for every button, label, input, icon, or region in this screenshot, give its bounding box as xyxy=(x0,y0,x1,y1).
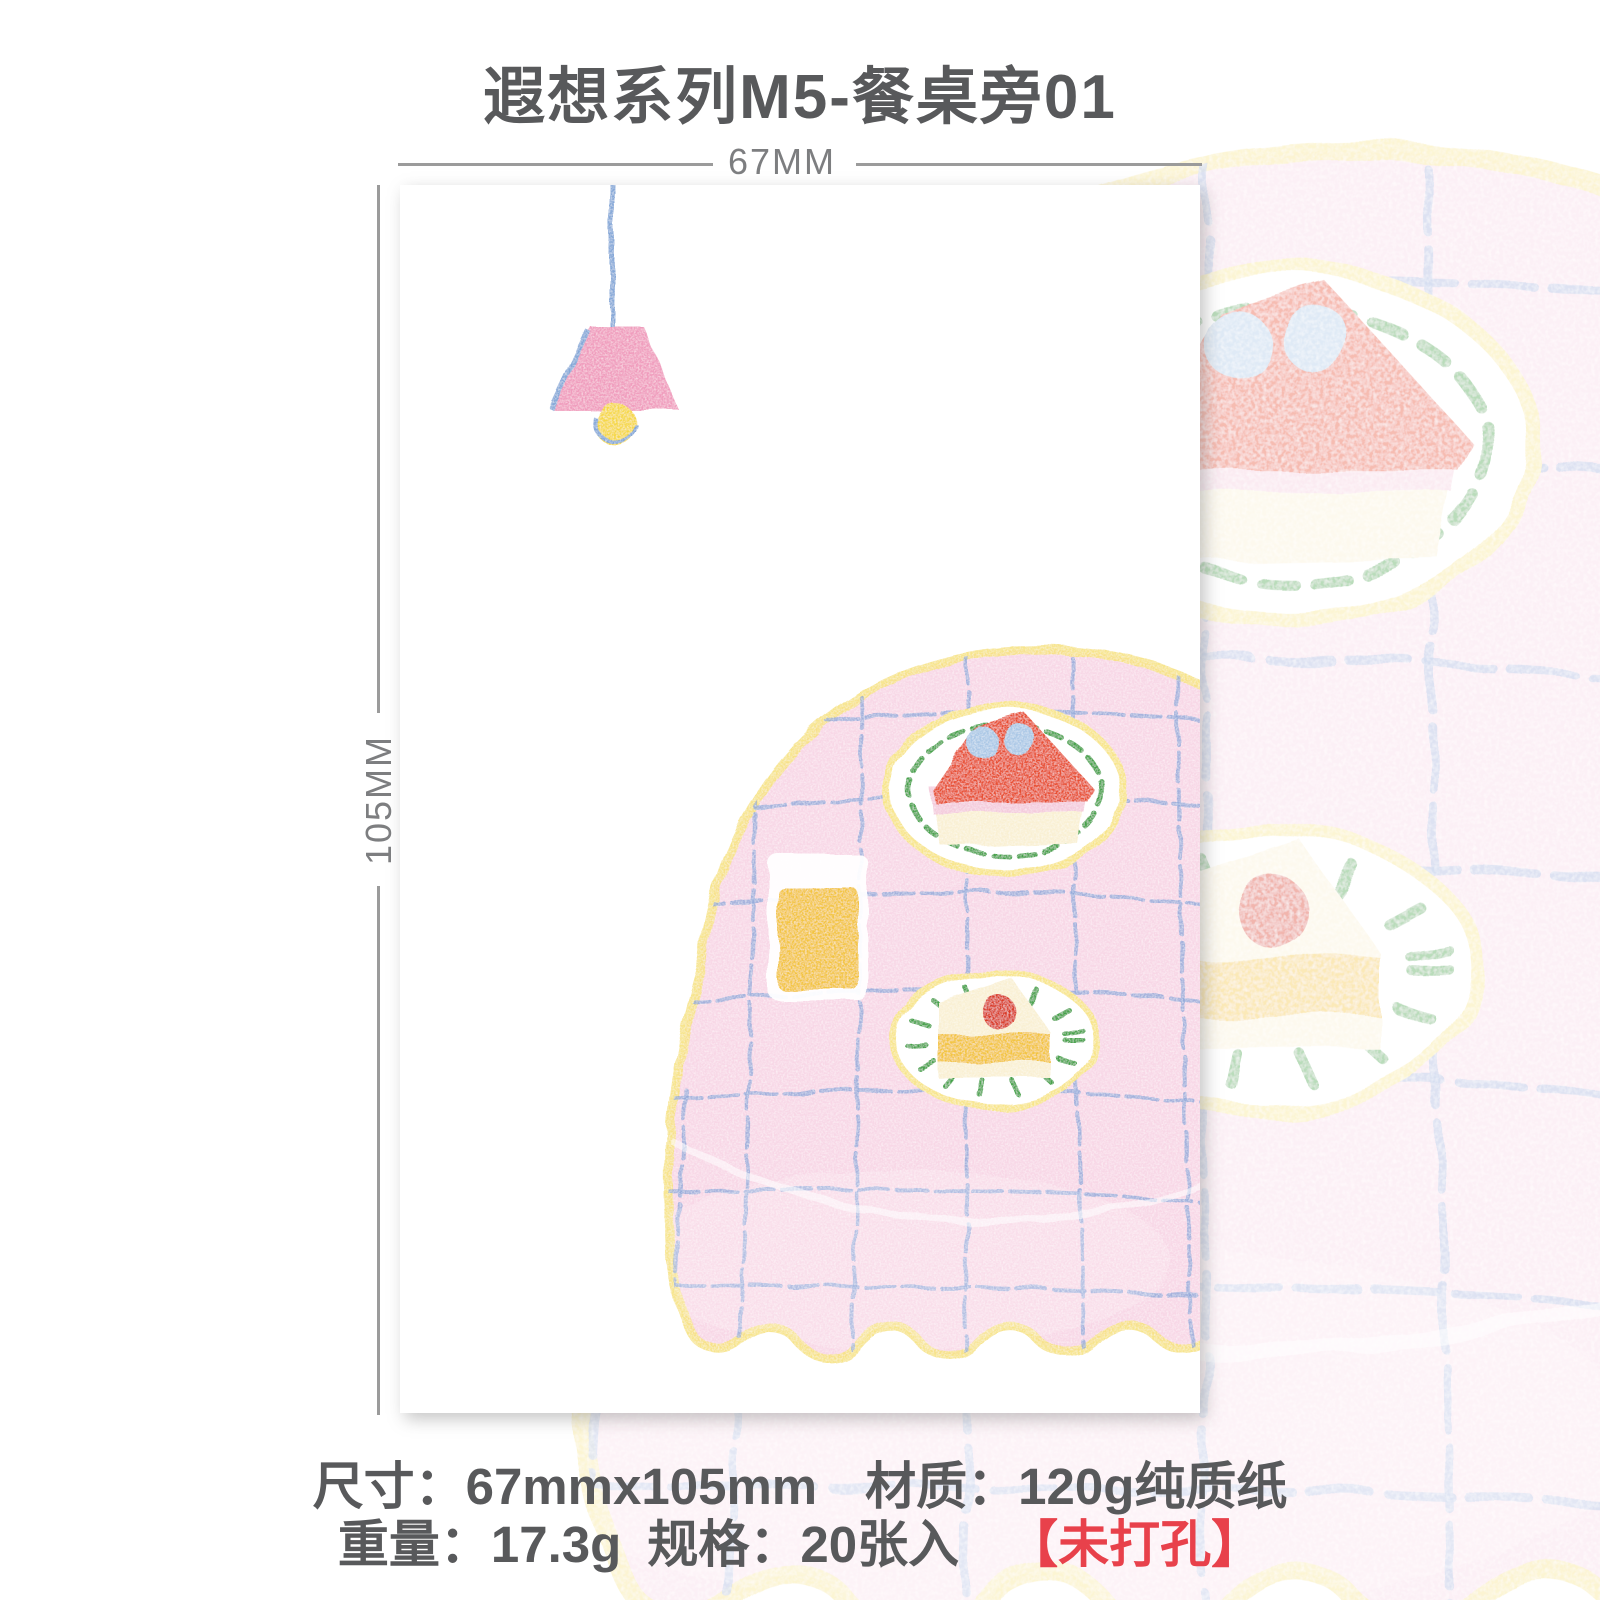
page-title: 遐想系列M5-餐桌旁01 xyxy=(0,46,1600,136)
weight-label: 重量： xyxy=(338,1516,491,1573)
height-dimension-label: 105MM xyxy=(358,700,400,900)
count-label: 规格： xyxy=(647,1516,800,1573)
material-value: 120g纯质纸 xyxy=(1018,1458,1287,1515)
size-label: 尺寸： xyxy=(313,1458,466,1515)
product-poster: 67MM 105MM 遐想系列M5-餐桌旁01 尺寸：67mmx105mm材质：… xyxy=(0,0,1600,1600)
spec-line-1: 尺寸：67mmx105mm材质：120g纯质纸 xyxy=(0,1458,1600,1516)
memo-sheet-preview xyxy=(400,185,1200,1413)
count-value: 20张入 xyxy=(800,1516,959,1573)
material-label: 材质： xyxy=(865,1458,1018,1515)
height-dimension-line-top xyxy=(377,185,380,713)
width-dimension-line-right xyxy=(856,163,1202,166)
no-hole-note: 【未打孔】 xyxy=(1007,1516,1262,1573)
width-dimension-line-left xyxy=(398,163,713,166)
size-value: 67mmx105mm xyxy=(466,1458,818,1515)
width-dimension-label: 67MM xyxy=(728,141,836,183)
spec-line-2: 重量：17.3g规格：20张入【未打孔】 xyxy=(0,1516,1600,1574)
memo-sheet-artwork xyxy=(400,185,1200,1413)
height-dimension-line-bottom xyxy=(377,886,380,1415)
spec-text: 尺寸：67mmx105mm材质：120g纯质纸 重量：17.3g规格：20张入【… xyxy=(0,1458,1600,1574)
weight-value: 17.3g xyxy=(491,1516,621,1573)
